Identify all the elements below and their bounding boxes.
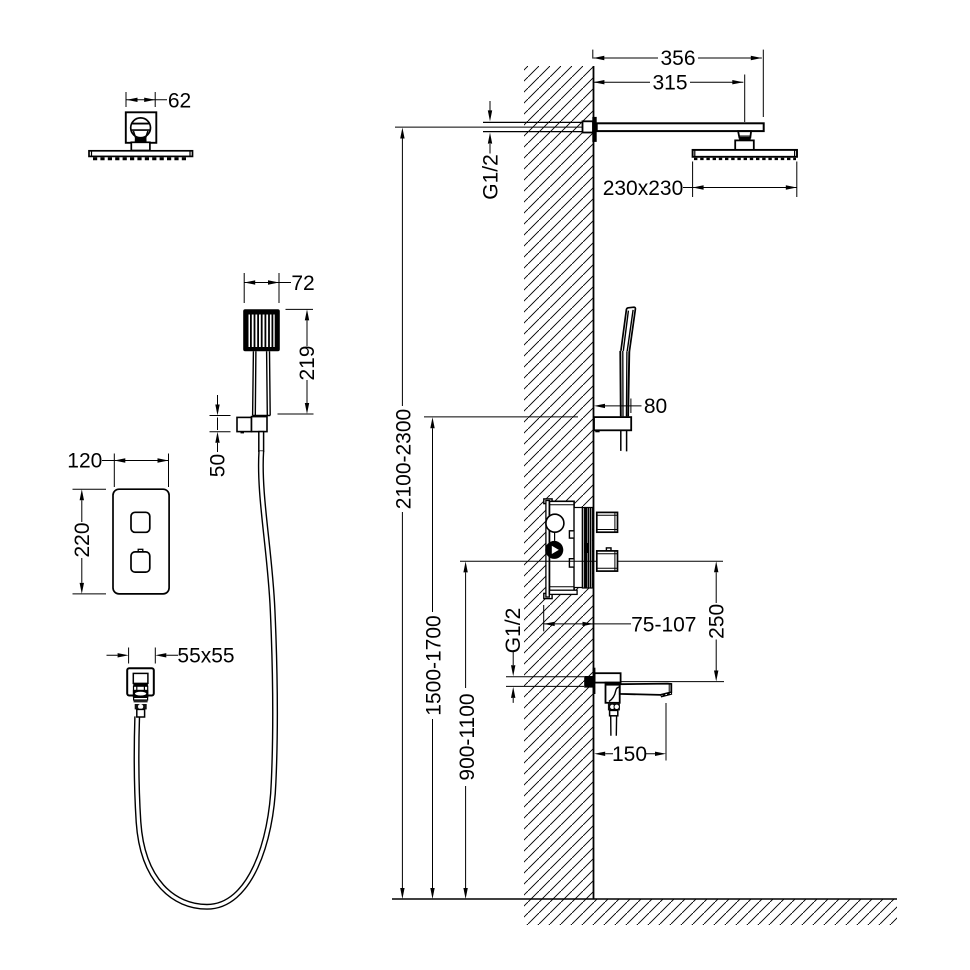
svg-text:1500-1700: 1500-1700 xyxy=(423,615,446,715)
svg-text:62: 62 xyxy=(168,90,191,113)
svg-text:50: 50 xyxy=(207,454,230,477)
svg-text:120: 120 xyxy=(67,450,102,473)
svg-text:80: 80 xyxy=(644,395,667,418)
svg-text:220: 220 xyxy=(71,522,94,557)
svg-text:75-107: 75-107 xyxy=(631,613,696,636)
svg-text:219: 219 xyxy=(296,345,319,380)
svg-text:315: 315 xyxy=(652,71,687,94)
svg-text:G1/2: G1/2 xyxy=(480,154,503,200)
svg-text:356: 356 xyxy=(660,47,695,70)
svg-text:G1/2: G1/2 xyxy=(502,608,525,654)
svg-text:72: 72 xyxy=(291,272,314,295)
svg-text:250: 250 xyxy=(705,604,728,639)
svg-text:55x55: 55x55 xyxy=(177,645,234,668)
svg-text:230x230: 230x230 xyxy=(603,177,684,200)
svg-text:2100-2300: 2100-2300 xyxy=(393,409,416,509)
svg-text:150: 150 xyxy=(612,743,647,766)
svg-text:900-1100: 900-1100 xyxy=(456,693,479,780)
